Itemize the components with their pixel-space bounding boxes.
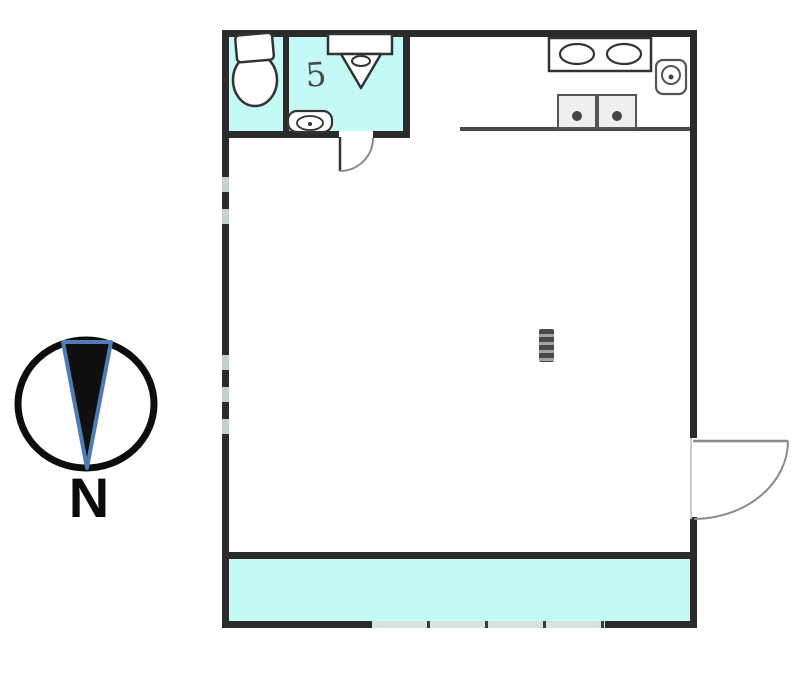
wall-left-lower (222, 440, 229, 628)
bathroom-door-swing (340, 137, 373, 171)
double-sink-counter-icon (549, 38, 651, 71)
wall-right-lower (690, 517, 697, 628)
wall-bottom-left (222, 621, 372, 628)
two-burner-stove-icon (558, 95, 636, 128)
toilet-partition-wall (283, 30, 289, 138)
left-window-lower (222, 355, 229, 440)
bathroom-glyph: 5 (301, 52, 330, 98)
north-label: N (59, 468, 119, 528)
wall-left-mid (222, 235, 229, 355)
compass-icon (10, 330, 170, 480)
left-window-upper (222, 177, 229, 235)
floor-plan-page: 5 N (0, 0, 800, 679)
wall-bottom-right (605, 621, 697, 628)
entry-door-swing (691, 438, 788, 519)
wall-right-upper (690, 30, 697, 438)
balcony-floor (229, 559, 690, 621)
balcony-wall (222, 552, 697, 559)
bathroom-wall-right (403, 30, 410, 138)
center-mark-icon (539, 329, 554, 362)
bottom-sliding-window (372, 621, 605, 628)
water-heater-icon (656, 60, 686, 94)
wall-top (222, 30, 697, 37)
bathroom-wall-bottom-left (222, 131, 339, 138)
wall-left-upper (222, 30, 229, 177)
compass-needle (63, 342, 111, 468)
kitchen-counter-line (460, 127, 690, 131)
